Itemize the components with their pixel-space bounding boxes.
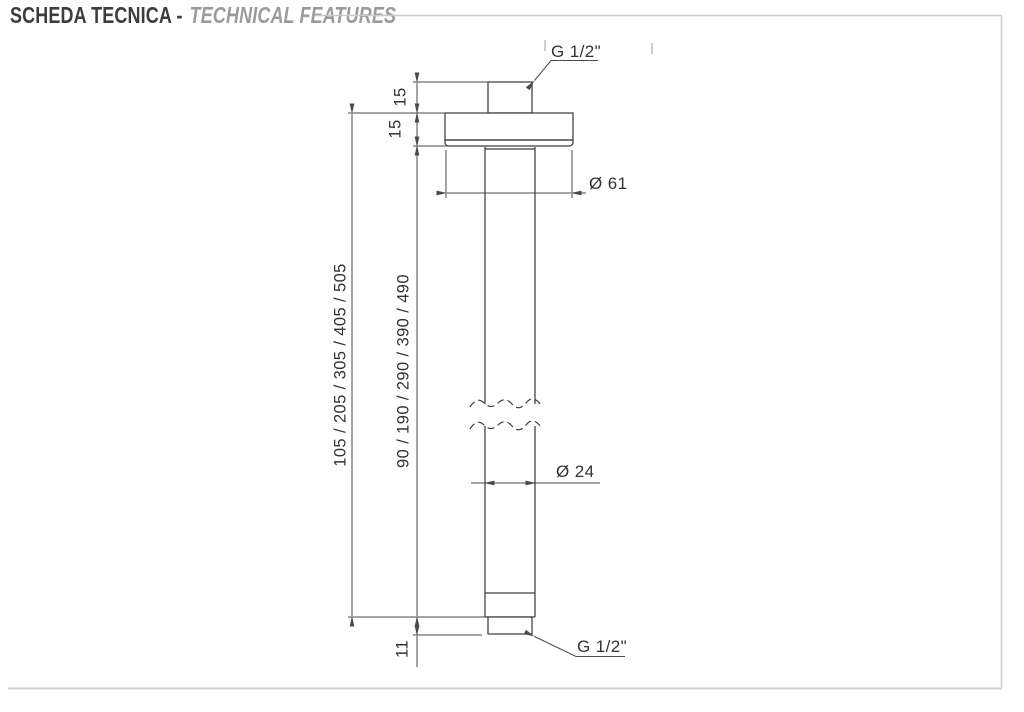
- flange: [445, 113, 573, 140]
- bottom-thread-label: G 1/2": [577, 637, 627, 657]
- top-thread-label: G 1/2": [551, 42, 601, 62]
- flange-height-label: 15: [387, 119, 406, 138]
- flange-lip: [445, 140, 573, 146]
- flange-diameter-label: Ø 61: [589, 174, 627, 194]
- top-fitting-height-label: 15: [392, 87, 411, 106]
- break-lines: [470, 399, 541, 430]
- pipe-upper-sides: [485, 147, 535, 404]
- pipe-lower-sides: [485, 426, 535, 617]
- dimension-lines: [348, 61, 625, 668]
- overall-length-label: 105 / 205 / 305 / 405 / 505: [332, 263, 351, 466]
- pipe-length-label: 90 / 190 / 290 / 390 / 490: [395, 274, 414, 468]
- technical-drawing: [0, 0, 1024, 712]
- bottom-thread: [488, 617, 532, 634]
- part-outline: [445, 82, 573, 634]
- leader-top-thread: [535, 61, 599, 81]
- top-fitting: [488, 82, 532, 113]
- bottom-thread-length-label: 11: [394, 640, 413, 658]
- technical-sheet: SCHEDA TECNICA - TECHNICAL FEATURES: [0, 0, 1024, 712]
- pipe-diameter-label: Ø 24: [556, 462, 594, 482]
